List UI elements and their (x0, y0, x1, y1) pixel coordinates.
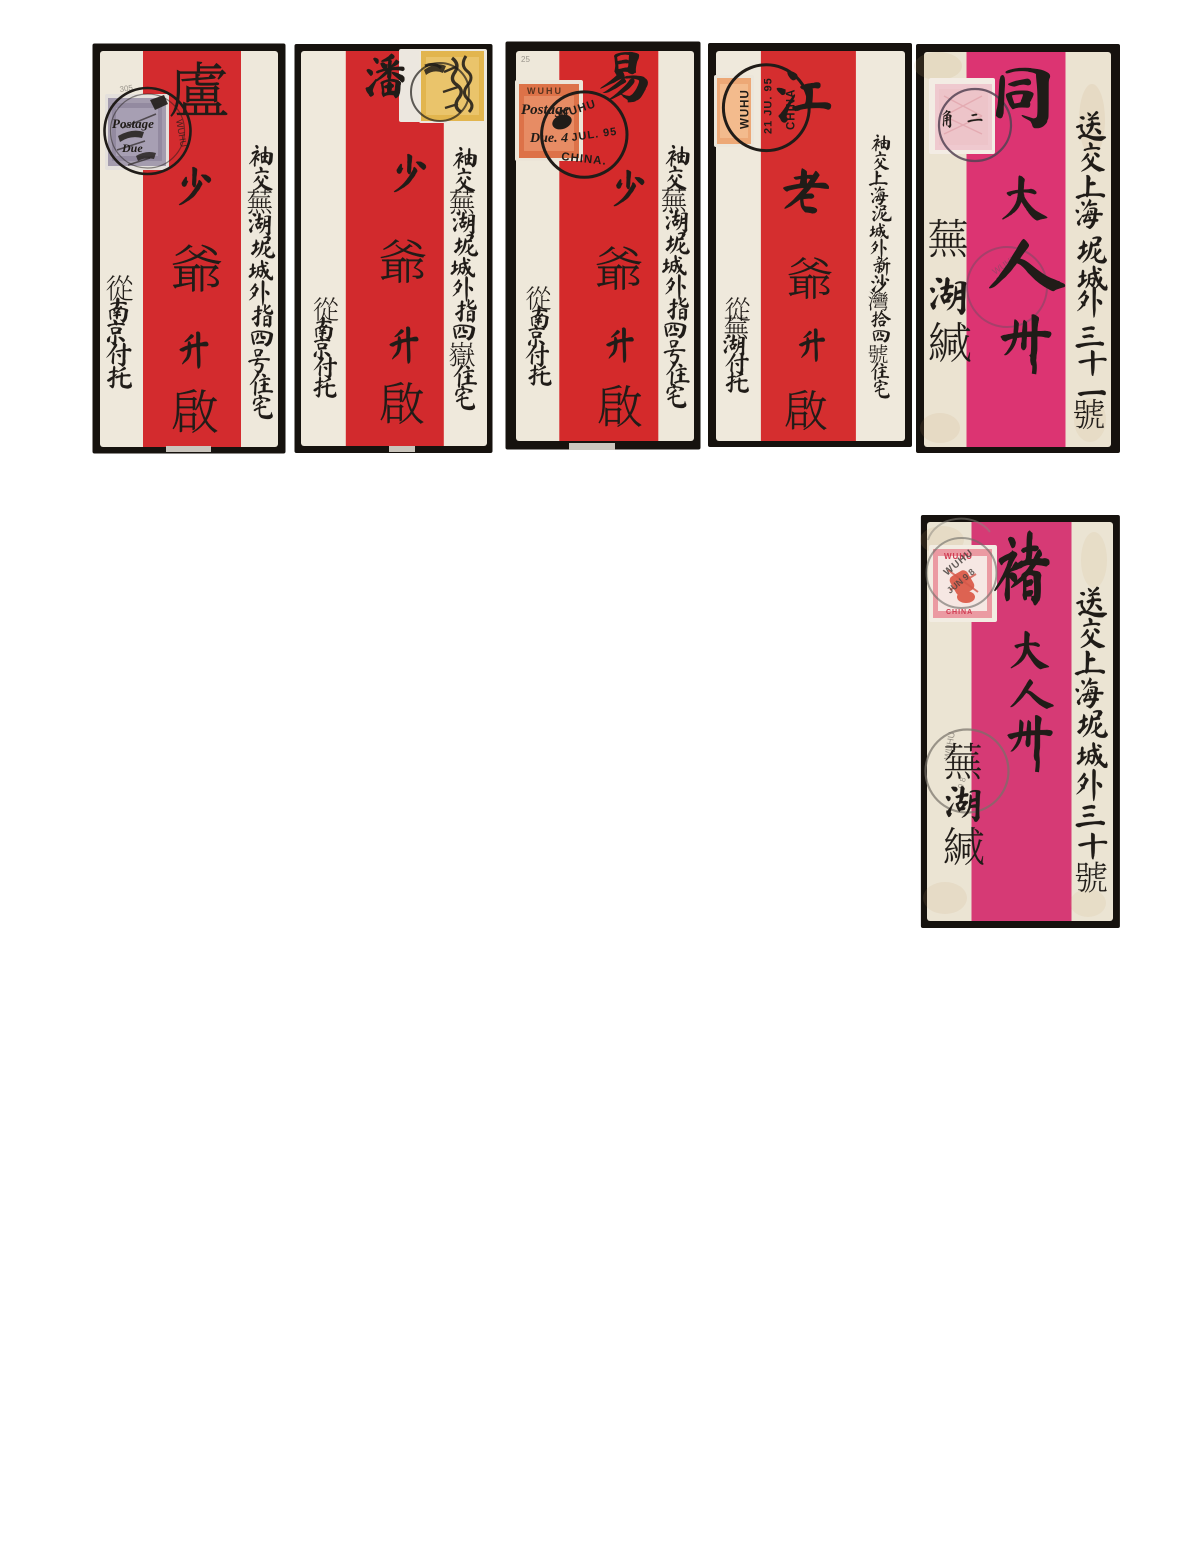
svg-text:WUHU: WUHU (527, 86, 563, 96)
svg-text:21 JU. 95: 21 JU. 95 (763, 77, 775, 134)
svg-text:25: 25 (521, 55, 530, 64)
svg-text:WUHU: WUHU (740, 89, 752, 129)
svg-text:Due. 4: Due. 4 (529, 131, 568, 146)
svg-text:CHINA: CHINA (946, 609, 973, 616)
